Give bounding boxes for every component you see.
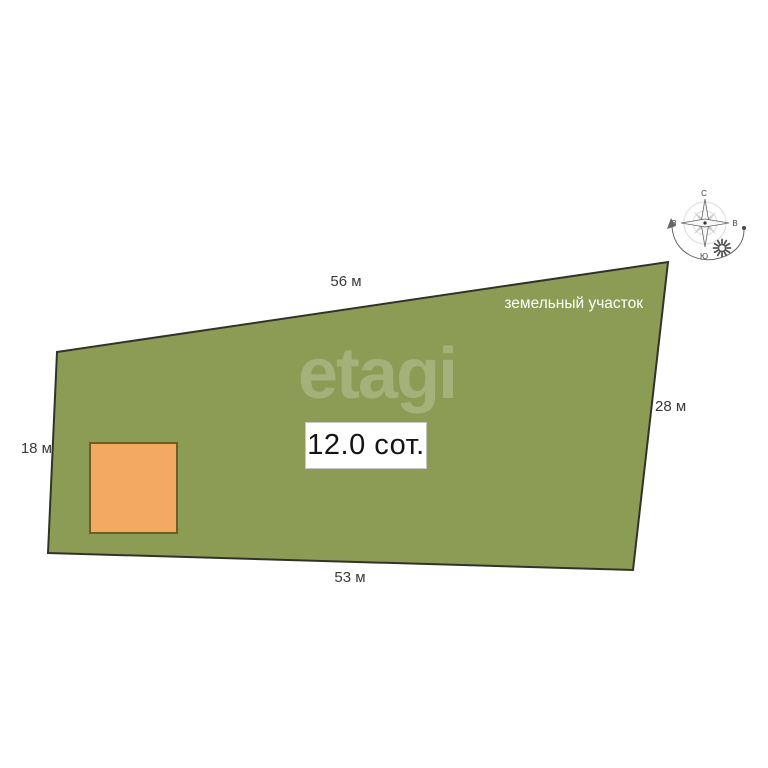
dimension-label-right: 28 м xyxy=(655,398,686,415)
area-badge: 12.0 сот. xyxy=(305,422,427,469)
compass-east-label: В xyxy=(732,219,737,228)
compass-north-label: С xyxy=(701,189,707,198)
compass-rose-icon: С Ю З В xyxy=(667,189,746,261)
sun-icon xyxy=(714,240,731,257)
plot-title: земельный участок xyxy=(450,295,643,313)
building-footprint xyxy=(90,443,177,533)
dimension-label-left: 18 м xyxy=(16,440,52,457)
watermark-logo: etagi xyxy=(298,338,456,410)
dimension-label-bottom: 53 м xyxy=(322,569,378,586)
arc-end-dot xyxy=(742,226,746,230)
dimension-label-top: 56 м xyxy=(318,273,374,290)
land-plot-plan: С Ю З В xyxy=(0,0,768,768)
